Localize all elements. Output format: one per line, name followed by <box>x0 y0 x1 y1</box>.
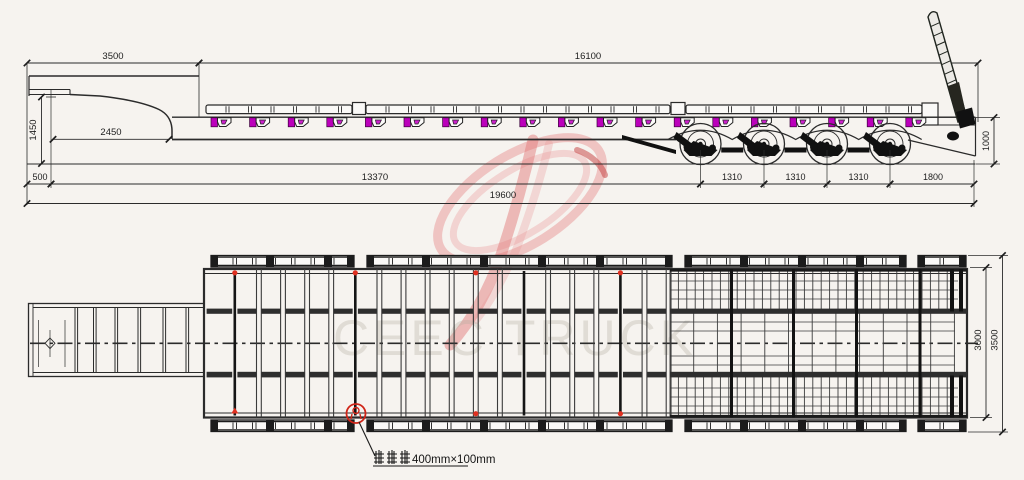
svg-text:1310: 1310 <box>785 172 805 182</box>
svg-text:13370: 13370 <box>362 172 388 183</box>
svg-text:1800: 1800 <box>923 172 943 182</box>
svg-text:1310: 1310 <box>722 172 742 182</box>
svg-text:400mm×100mm: 400mm×100mm <box>412 454 495 466</box>
svg-text:16100: 16100 <box>575 51 601 62</box>
svg-text:500: 500 <box>32 172 47 182</box>
svg-text:1450: 1450 <box>28 119 39 140</box>
svg-text:1000: 1000 <box>981 131 991 151</box>
svg-text:3500: 3500 <box>990 329 1001 350</box>
svg-text:3500: 3500 <box>102 51 123 62</box>
svg-text:19600: 19600 <box>490 190 516 201</box>
svg-text:3000: 3000 <box>973 329 984 350</box>
svg-text:2450: 2450 <box>100 127 121 138</box>
svg-text:1310: 1310 <box>848 172 868 182</box>
